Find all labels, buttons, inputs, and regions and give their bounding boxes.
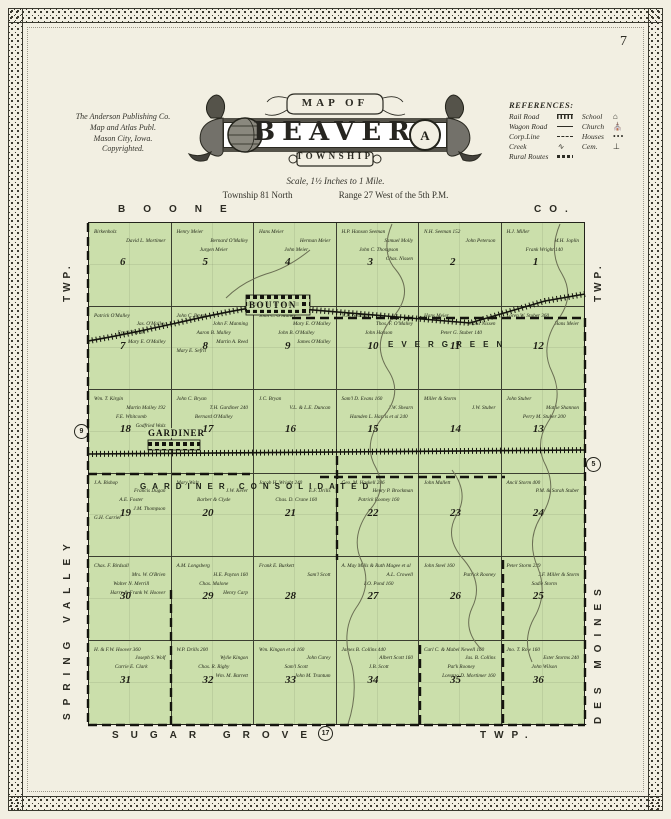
landowner-name: Pat'k Rooney xyxy=(448,665,475,671)
landowner-name: Wm. M. Barrett xyxy=(216,674,248,680)
section-6: 6BirkenholzDavid L. Mortimer xyxy=(89,223,172,307)
landowner-name: Herman Meier xyxy=(300,239,331,245)
landowner-name: Peter Storm 239 xyxy=(507,564,541,570)
landowner-name: J.M. Thompson xyxy=(133,507,165,513)
section-27: 27A. May Mills & Ruth Magee et alA.L. Cr… xyxy=(337,557,420,641)
section-14: 14Miller & StormJ.W. Stuber xyxy=(419,390,502,474)
landowner-name: John Hanson xyxy=(365,331,393,337)
landowner-name: A.L. Crowell xyxy=(387,573,413,579)
landowner-name: P.M. & Sarah Stuber xyxy=(536,489,579,495)
landowner-name: Sam'l Scott xyxy=(307,573,330,579)
owner-names: J.C. BryanV.L. & L.E. Duncan xyxy=(256,397,334,412)
landowner-name: J.A. Bishop xyxy=(94,481,118,487)
landowner-name: H. & F.W. Hoover 360 xyxy=(94,648,141,654)
owner-names: Henry MeierBernard O'MalleyJurgen Meier xyxy=(174,230,252,254)
landowner-name: A.M. Longsberg xyxy=(177,564,210,570)
landowner-name: A.E. Foster xyxy=(119,498,143,504)
town-label-bouton: BOUTON xyxy=(247,300,299,310)
section-number: 19 xyxy=(120,507,131,519)
title-township-word: TOWNSHIP xyxy=(185,151,485,161)
section-34: 34James B. Collins 440Albert Scott 160J.… xyxy=(337,641,420,725)
landowner-name: Chas. Nissen xyxy=(386,257,413,263)
section-number: 26 xyxy=(450,590,461,602)
landowner-name: Hamden L. Harris et al 240 xyxy=(350,415,408,421)
landowner-name: Bernard O'Malley xyxy=(195,415,233,421)
landowner-name: Albert Scott 160 xyxy=(379,656,413,662)
landowner-name: John Carey xyxy=(307,656,331,662)
section-30: 30Chas. F. BirdsallMrs. W. O'BrienWalter… xyxy=(89,557,172,641)
landowner-name: Hans Meier xyxy=(259,230,284,236)
landowner-name: Sam'l Scott xyxy=(285,665,308,671)
landowner-name: Chas. R. Rigby xyxy=(198,665,229,671)
landowner-name: J.B. Scott xyxy=(369,665,389,671)
section-36: 36Jno. T. Row 160Ester Storms 240John Wi… xyxy=(502,641,585,725)
legend-label-church: Church xyxy=(582,122,609,131)
landowner-name: Chas. D. Crane 160 xyxy=(275,498,317,504)
page-number: 7 xyxy=(620,34,627,50)
legend-label-rural-routes: Rural Routes xyxy=(509,152,553,161)
landowner-name: Frank Wright 140 xyxy=(526,248,563,254)
section-number: 22 xyxy=(367,507,378,519)
landowner-name: G.H. Carrier xyxy=(94,516,121,522)
section-number: 7 xyxy=(120,340,126,352)
landowner-name: Jno. T. Row 160 xyxy=(507,648,540,654)
publisher-line: Copyrighted. xyxy=(58,144,188,155)
owner-names: H.P. Hanson SeemanSamuel MollyJohn C. Th… xyxy=(339,230,417,263)
landowner-name: Chas. F. Birdsall xyxy=(94,564,129,570)
legend-label-houses: Houses xyxy=(582,132,609,141)
adjacent-twp-des-moines: DES MOINES xyxy=(593,478,604,724)
landowner-name: Perry M. Stuber 200 xyxy=(523,415,566,421)
landowner-name: Joseph S. Wolf xyxy=(135,656,165,662)
section-number: 4 xyxy=(285,256,291,268)
landowner-name: T.H. Gardiner 240 xyxy=(210,406,248,412)
landowner-name: F.E. Whitcomb xyxy=(116,415,147,421)
section-number: 27 xyxy=(367,590,378,602)
section-number: 30 xyxy=(120,590,131,602)
landowner-name: John C. Bryan xyxy=(177,397,207,403)
landowner-name: H.E. Payton 160 xyxy=(213,573,248,579)
landowner-name: Martin A. Reed xyxy=(216,340,248,346)
title-map-of: MAP OF xyxy=(185,97,485,109)
landowner-name: J.F. Miller & Storm xyxy=(538,573,579,579)
landowner-name: Hans Meier xyxy=(424,314,449,320)
landowner-name: John C. O'Malley xyxy=(259,314,296,320)
section-number: 17 xyxy=(202,423,213,435)
section-number: 36 xyxy=(533,674,544,686)
section-number: 10 xyxy=(367,340,378,352)
owner-names: H. & F.W. Hoover 360Joseph S. WolfCarrie… xyxy=(91,648,169,672)
landowner-name: Barber & Clyde xyxy=(197,498,230,504)
landowner-name: Ester Storms 240 xyxy=(543,656,579,662)
publisher-block: The Anderson Publishing Co. Map and Atla… xyxy=(58,112,188,155)
landowner-name: Wylie Kingon xyxy=(220,656,248,662)
township-name: BEAVER xyxy=(185,117,485,147)
railroad-symbol xyxy=(557,114,573,119)
section-4: 4Hans MeierHerman MeierJohn Meier xyxy=(254,223,337,307)
section-2: 2N.H. Seeman 152John Peterson xyxy=(419,223,502,307)
landowner-name: James O'Malley xyxy=(297,340,331,346)
section-number: 11 xyxy=(450,340,460,352)
owner-names: John C. BryanJohn F. ManningAaron B. Mal… xyxy=(174,314,252,356)
legend-label-school: School xyxy=(582,112,609,121)
section-number: 5 xyxy=(202,256,208,268)
section-number: 35 xyxy=(450,674,461,686)
section-number: 21 xyxy=(285,507,296,519)
legend-label-corp-line: Corp.Line xyxy=(509,132,553,141)
section-29: 29A.M. LongsbergH.E. Payton 160Chas. Mal… xyxy=(172,557,255,641)
section-number: 12 xyxy=(533,340,544,352)
legend-label-wagon-road: Wagon Road xyxy=(509,122,553,131)
landowner-name: Thos. F. O'Malley xyxy=(376,322,413,328)
landowner-name: Mattie Shannon xyxy=(546,406,579,412)
section-number: 20 xyxy=(202,507,213,519)
section-28: 28Frank E. BurkettSam'l Scott xyxy=(254,557,337,641)
owner-names: N.H. Seeman 152John Peterson xyxy=(421,230,499,245)
landowner-name: Patrick Rooney xyxy=(463,573,495,579)
border-ornament-left xyxy=(8,8,23,811)
owner-names: John C. BryanT.H. Gardiner 240Bernard O'… xyxy=(174,397,252,421)
landowner-name: John M. Trantum xyxy=(295,674,331,680)
landowner-name: Aaron B. Malley xyxy=(197,331,231,337)
landowner-name: Peter G. Stuber 140 xyxy=(441,331,483,337)
landowner-name: Jurgen Meier xyxy=(200,248,228,254)
rural-route-marker-17: 17 xyxy=(318,726,333,741)
references-legend: REFERENCES: Rail Road School ⌂ Wagon Roa… xyxy=(509,100,629,161)
section-number: 29 xyxy=(202,590,213,602)
owner-names: BirkenholzDavid L. Mortimer xyxy=(91,230,169,245)
landowner-name: Mrs. W. O'Brien xyxy=(132,573,166,579)
section-number: 1 xyxy=(533,256,539,268)
landowner-name: Bernard O'Malley xyxy=(210,239,248,245)
landowner-name: Henry P. Brockman xyxy=(373,489,413,495)
border-ornament-right xyxy=(648,8,663,811)
owner-names: N.H. SeamanThos. F. O'MalleyJohn Hanson xyxy=(339,314,417,338)
right-twp-label: TWP. xyxy=(593,238,604,302)
range-west: Range 27 West of the 5th P.M. xyxy=(339,190,449,200)
owner-names: John StuberMattie ShannonPerry M. Stuber… xyxy=(504,397,583,421)
publisher-line: The Anderson Publishing Co. xyxy=(58,112,188,123)
landowner-name: John Mallett xyxy=(424,481,450,487)
section-15: 15Sam'l D. Evans 160J.W. ShearnHamden L.… xyxy=(337,390,420,474)
landowner-name: Ancil Storm 400 xyxy=(507,481,541,487)
section-5: 5Henry MeierBernard O'MalleyJurgen Meier xyxy=(172,223,255,307)
landowner-name: I.O. Pond 160 xyxy=(364,582,393,588)
adjacent-twp-spring-valley: SPRING VALLEY xyxy=(62,448,73,720)
school-icon: ⌂ xyxy=(613,113,629,120)
owner-names: A. May Mills & Ruth Magee et alA.L. Crow… xyxy=(339,564,417,588)
landowner-name: Jas. O'Malley xyxy=(137,322,166,328)
section-number: 13 xyxy=(533,423,544,435)
landowner-name: H.J. Miller xyxy=(507,230,530,236)
section-number: 23 xyxy=(450,507,461,519)
landowner-name: Patrick O'Malley xyxy=(94,314,130,320)
section-number: 32 xyxy=(202,674,213,686)
left-twp-label: TWP. xyxy=(62,238,73,302)
section-number: 6 xyxy=(120,256,126,268)
township-range-line: Township 81 North Range 27 West of the 5… xyxy=(0,190,671,200)
adjacent-county-co: CO. xyxy=(534,204,576,215)
landowner-name: Frank E. Burkett xyxy=(259,564,294,570)
landowner-name: Jas. B. Collins xyxy=(465,656,495,662)
section-32: 32W.P. Drills 200Wylie KingonChas. R. Ri… xyxy=(172,641,255,725)
section-number: 34 xyxy=(367,674,378,686)
landowner-name: Samuel Molly xyxy=(384,239,413,245)
landowner-name: Henry Carp xyxy=(223,591,248,597)
section-16: 16J.C. BryanV.L. & L.E. Duncan xyxy=(254,390,337,474)
district-label-gardiner-consolidated: GARDINER CONSOLIDATED xyxy=(140,482,374,491)
rural-route-marker-9: 9 xyxy=(74,424,89,439)
section-13: 13John StuberMattie ShannonPerry M. Stub… xyxy=(502,390,585,474)
landowner-name: Hans Meier xyxy=(554,322,579,328)
legend-label-cemetery: Cem. xyxy=(582,142,609,151)
landowner-name: Wm. T. Kirgin xyxy=(94,397,123,403)
landowner-name: Martin Malley 192 xyxy=(126,406,165,412)
owner-names: James B. Collins 440Albert Scott 160J.B.… xyxy=(339,648,417,672)
landowner-name: John Peterson xyxy=(466,239,496,245)
rural-route-marker-5: 5 xyxy=(586,457,601,472)
owner-names: John Steel 160Patrick Rooney xyxy=(421,564,499,579)
cemetery-symbol: ⊥ xyxy=(613,143,629,150)
legend-label-creek: Creek xyxy=(509,142,553,151)
township-section-grid: 6BirkenholzDavid L. Mortimer5Henry Meier… xyxy=(88,222,585,725)
section-31: 31H. & F.W. Hoover 360Joseph S. WolfCarr… xyxy=(89,641,172,725)
landowner-name: John C. Bryan xyxy=(177,314,207,320)
title-banner: A MAP OF BEAVER TOWNSHIP xyxy=(185,88,485,174)
section-number: 9 xyxy=(285,340,291,352)
landowner-name: J.C. Bryan xyxy=(259,397,281,403)
landowner-name: M.H. Joplin xyxy=(554,239,579,245)
owner-names: H.J. MillerM.H. JoplinFrank Wright 140 xyxy=(504,230,583,254)
owner-names: Patrick O'MalleyJas. O'MalleyFrank Parce… xyxy=(91,314,169,347)
corp-line-symbol xyxy=(557,136,573,137)
adjacent-twp-sugar-grove: SUGAR GROVE xyxy=(112,730,319,741)
houses-symbol: ••• xyxy=(613,134,629,140)
landowner-name: Henry Meier xyxy=(177,230,204,236)
border-ornament-top xyxy=(8,8,663,23)
owner-names: Jno. T. Row 160Ester Storms 240John Wils… xyxy=(504,648,583,672)
section-23: 23John Mallett xyxy=(419,474,502,558)
section-number: 15 xyxy=(367,423,378,435)
section-number: 3 xyxy=(367,256,373,268)
owner-names: Peter Storm 239J.F. Miller & StormSadie … xyxy=(504,564,583,588)
landowner-name: Frank Parcel xyxy=(117,331,145,337)
border-ornament-bottom xyxy=(8,796,663,811)
section-24: 24Ancil Storm 400P.M. & Sarah Stuber xyxy=(502,474,585,558)
landowner-name: W.P. Drills 200 xyxy=(177,648,208,654)
landowner-name: Harry & Frank W. Hoover xyxy=(110,591,165,597)
section-number: 2 xyxy=(450,256,456,268)
landowner-name: John Stuber xyxy=(507,397,532,403)
publisher-line: Mason City, Iowa. xyxy=(58,134,188,145)
section-25: 25Peter Storm 239J.F. Miller & StormSadi… xyxy=(502,557,585,641)
landowner-name: John Steel 160 xyxy=(424,564,455,570)
church-icon: ⛪ xyxy=(613,123,629,130)
landowner-name: Loren W. Stuber 360 xyxy=(507,314,550,320)
owner-names: Miller & StormJ.W. Stuber xyxy=(421,397,499,412)
section-8: 8John C. BryanJohn F. ManningAaron B. Ma… xyxy=(172,307,255,391)
landowner-name: J.W. Stuber xyxy=(472,406,496,412)
landowner-name: Chas. Malone xyxy=(199,582,228,588)
publisher-line: Map and Atlas Publ. xyxy=(58,123,188,134)
section-35: 35Carl C. & Mabel Newell 160Jas. B. Coll… xyxy=(419,641,502,725)
section-7: 7Patrick O'MalleyJas. O'MalleyFrank Parc… xyxy=(89,307,172,391)
section-3: 3H.P. Hanson SeemanSamuel MollyJohn C. T… xyxy=(337,223,420,307)
section-number: 31 xyxy=(120,674,131,686)
landowner-name: Walter N. Merrill xyxy=(113,582,149,588)
bottom-twp-label: TWP. xyxy=(480,730,536,741)
landowner-name: David L. Mortimer xyxy=(126,239,165,245)
section-number: 24 xyxy=(533,507,544,519)
landowner-name: Patrick Rooney 160 xyxy=(358,498,399,504)
section-9: 9John C. O'MalleyMary E. O'MalleyJohn B.… xyxy=(254,307,337,391)
section-12: 12Loren W. Stuber 360Hans Meier xyxy=(502,307,585,391)
rural-routes-symbol xyxy=(557,155,573,158)
scale-note: Scale, 1½ Inches to 1 Mile. xyxy=(0,176,671,186)
landowner-name: Mary E. O'Malley xyxy=(293,322,331,328)
section-number: 28 xyxy=(285,590,296,602)
references-heading: REFERENCES: xyxy=(509,100,629,110)
atlas-page: 7 The Anderson Publishing Co. Map and At… xyxy=(0,0,671,819)
owner-names: Hans MeierHerman MeierJohn Meier xyxy=(256,230,334,254)
landowner-name: John Meier xyxy=(284,248,308,254)
section-number: 25 xyxy=(533,590,544,602)
section-number: 14 xyxy=(450,423,461,435)
section-1: 1H.J. MillerM.H. JoplinFrank Wright 140 xyxy=(502,223,585,307)
landowner-name: James B. Collins 440 xyxy=(342,648,386,654)
landowner-name: Carrie E. Clark xyxy=(115,665,148,671)
section-number: 16 xyxy=(285,423,296,435)
landowner-name: John B. O'Malley xyxy=(278,331,314,337)
landowner-name: Carl C. & Mabel Newell 160 xyxy=(424,648,484,654)
section-number: 18 xyxy=(120,423,131,435)
landowner-name: Miller & Storm xyxy=(424,397,456,403)
landowner-name: John Wilson xyxy=(531,665,557,671)
landowner-name: H.P. Hanson Seeman xyxy=(342,230,386,236)
landowner-name: V.L. & L.E. Duncan xyxy=(290,406,331,412)
landowner-name: N.H. Seaman xyxy=(342,314,370,320)
landowner-name: Wm. Kingon et al 160 xyxy=(259,648,304,654)
owner-names: Frank E. BurkettSam'l Scott xyxy=(256,564,334,579)
landowner-name: J.W. Shearn xyxy=(388,406,413,412)
landowner-name: N.H. Seeman 152 xyxy=(424,230,460,236)
owner-names: John C. O'MalleyMary E. O'MalleyJohn B. … xyxy=(256,314,334,347)
landowner-name: A. May Mills & Ruth Magee et al xyxy=(342,564,411,570)
landowner-name: Mary E. O'Malley xyxy=(128,340,166,346)
township-north: Township 81 North xyxy=(223,190,293,200)
town-label-gardiner: GARDINER xyxy=(146,428,207,438)
owner-names: Hans MeierClaus NissenPeter G. Stuber 14… xyxy=(421,314,499,338)
landowner-name: Birkenholz xyxy=(94,230,116,236)
wagon-road-symbol xyxy=(557,126,573,127)
landowner-name: John C. Thompson xyxy=(359,248,398,254)
section-33: 33Wm. Kingon et al 160John CareySam'l Sc… xyxy=(254,641,337,725)
adjacent-county-boone: BOONE xyxy=(118,204,245,215)
landowner-name: John F. Manning xyxy=(213,322,248,328)
section-26: 26John Steel 160Patrick Rooney xyxy=(419,557,502,641)
landowner-name: Sam'l D. Evans 160 xyxy=(342,397,383,403)
section-number: 8 xyxy=(202,340,208,352)
owner-names: Ancil Storm 400P.M. & Sarah Stuber xyxy=(504,481,583,496)
section-number: 33 xyxy=(285,674,296,686)
landowner-name: Claus Nissen xyxy=(468,322,495,328)
owner-names: John Mallett xyxy=(421,481,499,487)
owner-names: Sam'l D. Evans 160J.W. ShearnHamden L. H… xyxy=(339,397,417,421)
legend-label-railroad: Rail Road xyxy=(509,112,553,121)
owner-names: Loren W. Stuber 360Hans Meier xyxy=(504,314,583,329)
landowner-name: Sadie Storm xyxy=(532,582,557,588)
creek-symbol: ∿ xyxy=(557,144,578,150)
